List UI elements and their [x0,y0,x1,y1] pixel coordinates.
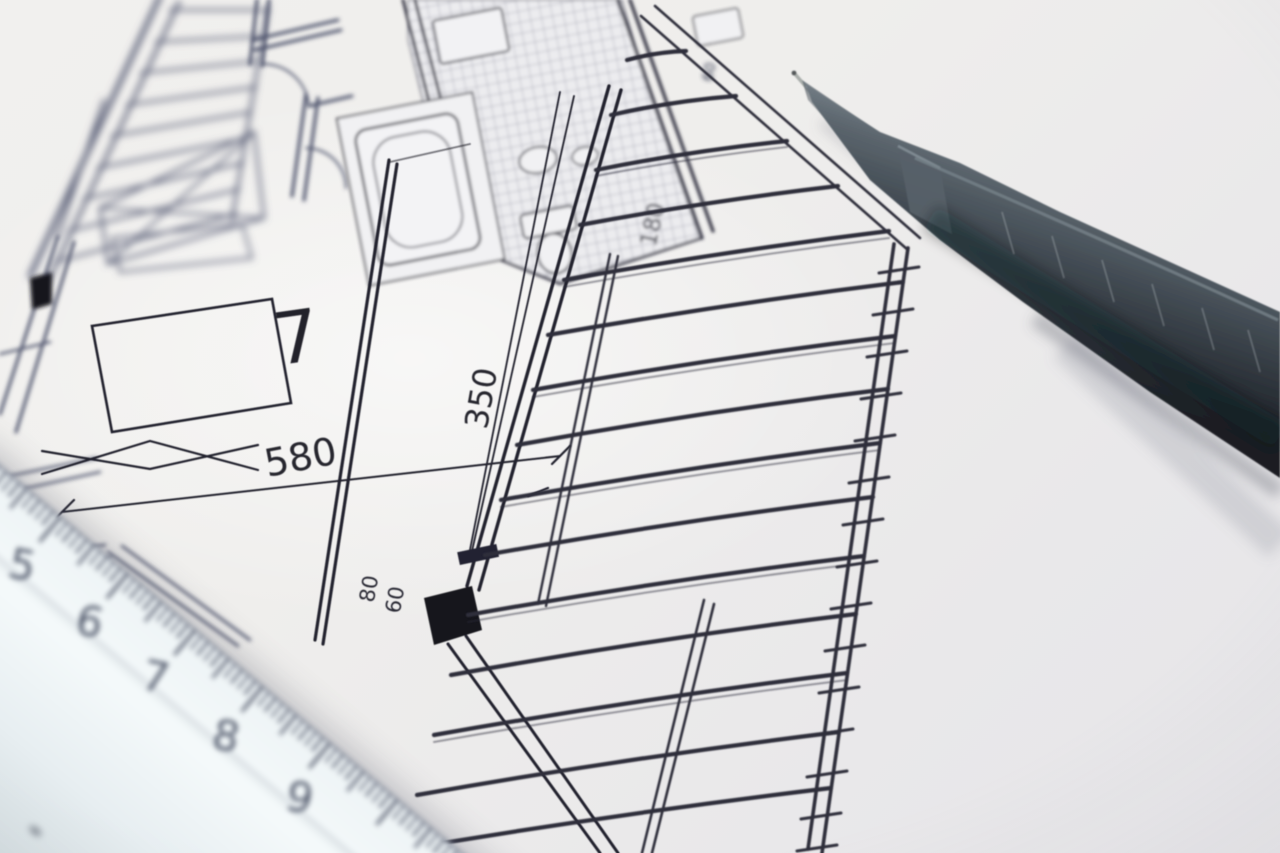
photo-vignette [0,0,1280,853]
photograph-scene: 60 180 [0,0,1280,853]
